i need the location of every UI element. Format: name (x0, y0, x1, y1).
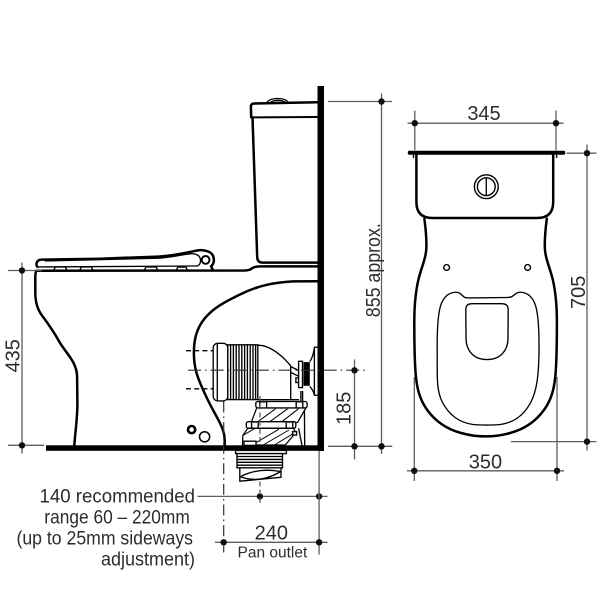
svg-text:Pan outlet: Pan outlet (237, 545, 307, 562)
svg-text:705: 705 (568, 276, 590, 309)
svg-text:855 approx.: 855 approx. (363, 223, 385, 317)
svg-text:350: 350 (469, 451, 502, 473)
svg-text:240: 240 (255, 523, 288, 545)
svg-text:345: 345 (467, 103, 500, 125)
svg-text:range 60 – 220mm: range 60 – 220mm (44, 508, 190, 529)
svg-text:adjustment): adjustment) (101, 550, 195, 571)
svg-text:140 recommended: 140 recommended (40, 487, 196, 508)
svg-text:435: 435 (2, 339, 24, 372)
svg-text:(up to 25mm sideways: (up to 25mm sideways (17, 529, 194, 550)
svg-text:185: 185 (334, 392, 356, 425)
